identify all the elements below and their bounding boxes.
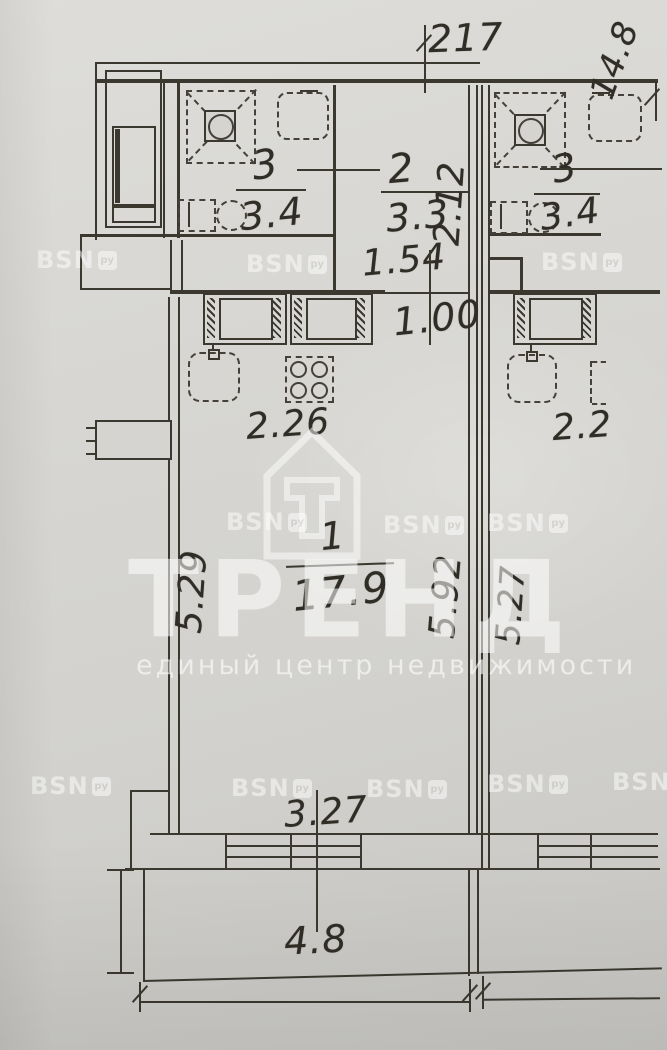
shower-drain-icon-right xyxy=(518,118,544,144)
stove-icon-right-partial-v xyxy=(590,361,592,403)
room3-right-area: 3.4 xyxy=(537,190,602,239)
bottom-dim-line-1 xyxy=(140,1001,470,1003)
wall-under-bath xyxy=(80,234,333,237)
sink-tap-left xyxy=(208,349,220,360)
bsn-text: BSN xyxy=(366,775,425,803)
window-jamb-4 xyxy=(537,833,539,870)
room2-number: 2 xyxy=(386,145,416,193)
sink-tap-right xyxy=(526,351,538,362)
stove-icon-right-partial-top xyxy=(592,361,606,363)
wall-entry-h xyxy=(80,288,172,290)
wall-room2-right-b xyxy=(476,85,478,297)
balcony-bottom-edge xyxy=(143,967,662,982)
bsn-watermark-2: BSNру xyxy=(246,250,327,278)
balcony-left-edge xyxy=(143,870,145,982)
dim-balcony-area: 4.8 xyxy=(283,916,349,963)
toilet-cistern-left xyxy=(300,90,318,92)
bsn-watermark-8: BSNру xyxy=(231,774,312,802)
washbasin-divider-left xyxy=(188,202,190,227)
room3-left-area: 3.4 xyxy=(238,189,306,239)
leader-line-left xyxy=(297,169,380,171)
bsn-text: BSN xyxy=(383,511,442,539)
cabinet-r-inner xyxy=(529,298,583,340)
stove-burner-4 xyxy=(311,382,328,399)
cabinet-1-inner xyxy=(219,298,273,340)
dim-building-side: 14.8 xyxy=(582,16,647,105)
wall-right-top xyxy=(655,79,657,121)
wall-top-thin xyxy=(95,62,480,64)
cabinet-r-end-right xyxy=(583,298,591,338)
bsn-text: BSN xyxy=(30,772,89,800)
wall-lowleft-h xyxy=(130,790,170,792)
bsn-box: ру xyxy=(92,777,111,796)
cabinet-1-end-right xyxy=(273,298,281,338)
balcony-dim-left-cap-top xyxy=(107,869,134,871)
bsn-box: ру xyxy=(428,780,447,799)
bsn-watermark-10: BSNру xyxy=(487,770,568,798)
bsn-watermark-3: BSNру xyxy=(541,248,622,276)
balcony-divider-b xyxy=(477,870,479,974)
bsn-box: ру xyxy=(293,779,312,798)
wall-lowleft-v xyxy=(130,790,132,870)
dim-hall-width: 1.54 xyxy=(360,236,447,284)
window-glazing-1a xyxy=(225,845,360,847)
cabinet-r-end-left xyxy=(517,298,525,338)
cabinet-1-end-left xyxy=(207,298,215,338)
bsn-box: ру xyxy=(549,775,568,794)
washbasin-divider-right xyxy=(500,204,502,229)
bottom-dim-ext-1 xyxy=(139,982,141,1012)
shower-drain-icon-left xyxy=(208,114,234,140)
sink-tap-stem-left xyxy=(212,343,214,350)
bsn-box: ру xyxy=(288,513,307,532)
dim-217-extension xyxy=(424,25,426,93)
balcony-dim-left-cap-bottom xyxy=(107,972,134,974)
cabinet-2-end-left xyxy=(294,298,302,338)
wall-corridor-left-b xyxy=(181,240,183,292)
balcony-divider-a xyxy=(468,870,470,976)
bsn-box: ру xyxy=(98,251,117,270)
dim-passage-width: 1.00 xyxy=(391,291,484,344)
bsn-watermark-11: BSNру xyxy=(612,768,667,796)
bsn-box: ру xyxy=(549,514,568,533)
bsn-text: BSN xyxy=(246,250,305,278)
floor-plan: 217 14.8 3 3.4 2 3.3 2.12 1.54 1.00 3 3.… xyxy=(0,0,667,1050)
window-jamb-5 xyxy=(590,833,592,870)
window-glazing-2a xyxy=(537,845,658,847)
wall-bottom-bottom-edge xyxy=(125,868,660,870)
bsn-watermark-7: BSNру xyxy=(30,772,111,800)
window-glazing-1b xyxy=(225,856,360,858)
bump-tick-1 xyxy=(86,427,95,429)
elevator-hatch-edge xyxy=(115,129,120,203)
window-glazing-2b xyxy=(537,856,658,858)
bsn-box: ру xyxy=(308,255,327,274)
toilet-icon-left xyxy=(277,92,329,140)
dim-kitchen-width-right: 2.2 xyxy=(551,404,614,449)
wall-unit-boundary-a xyxy=(481,85,483,870)
bsn-watermark-9: BSNру xyxy=(366,775,447,803)
bsn-text: BSN xyxy=(487,770,546,798)
bottom-dim-ext-2 xyxy=(469,979,471,1012)
dim-room2-height: 2.12 xyxy=(426,154,473,247)
bsn-watermark-5: BSNру xyxy=(383,511,464,539)
trend-watermark-tagline: единый центр недвижимости xyxy=(136,650,636,681)
stove-burner-2 xyxy=(311,361,328,378)
cabinet-2-end-right xyxy=(357,298,365,338)
bump-tick-2 xyxy=(86,440,95,442)
bsn-text: BSN xyxy=(36,246,95,274)
bsn-box: ру xyxy=(445,516,464,535)
wall-niche-right-v xyxy=(520,257,523,293)
tick-top-right xyxy=(644,88,660,106)
bsn-watermark-4: BSNру xyxy=(226,508,307,536)
cabinet-2-inner xyxy=(306,298,357,340)
room3-left-number: 3 xyxy=(249,140,282,189)
trend-watermark-brand: ТРЕНД xyxy=(128,547,576,653)
bump-tick-3 xyxy=(86,453,95,455)
window-jamb-2 xyxy=(290,833,292,870)
bsn-text: BSN xyxy=(612,768,667,796)
stove-burner-1 xyxy=(290,361,307,378)
shaft-lower-box xyxy=(112,204,156,223)
bsn-text: BSN xyxy=(231,774,290,802)
wall-bath-left-a xyxy=(163,80,165,238)
bottom-dim-line-2 xyxy=(483,997,660,1001)
washbasin-icon-left xyxy=(178,199,216,232)
window-jamb-1 xyxy=(225,833,227,870)
wall-room2-left xyxy=(333,85,336,290)
bsn-watermark-1: BSNру xyxy=(36,246,117,274)
bsn-watermark-6: BSNру xyxy=(487,509,568,537)
washbasin-icon-right xyxy=(490,201,528,234)
leader-line-right xyxy=(540,168,662,170)
wall-bump-out xyxy=(95,420,172,460)
bsn-box: ру xyxy=(603,253,622,272)
bsn-text: BSN xyxy=(487,509,546,537)
sink-tap-stem-right xyxy=(530,345,532,352)
window-jamb-3 xyxy=(360,833,362,870)
balcony-dim-left-line xyxy=(120,870,122,974)
bsn-text: BSN xyxy=(226,508,285,536)
bsn-text: BSN xyxy=(541,248,600,276)
dim-top-width: 217 xyxy=(427,15,504,62)
stove-burner-3 xyxy=(290,382,307,399)
wall-corridor-left-a xyxy=(170,240,172,292)
wall-niche-right-h xyxy=(489,257,523,260)
wall-left-outer xyxy=(95,62,97,240)
